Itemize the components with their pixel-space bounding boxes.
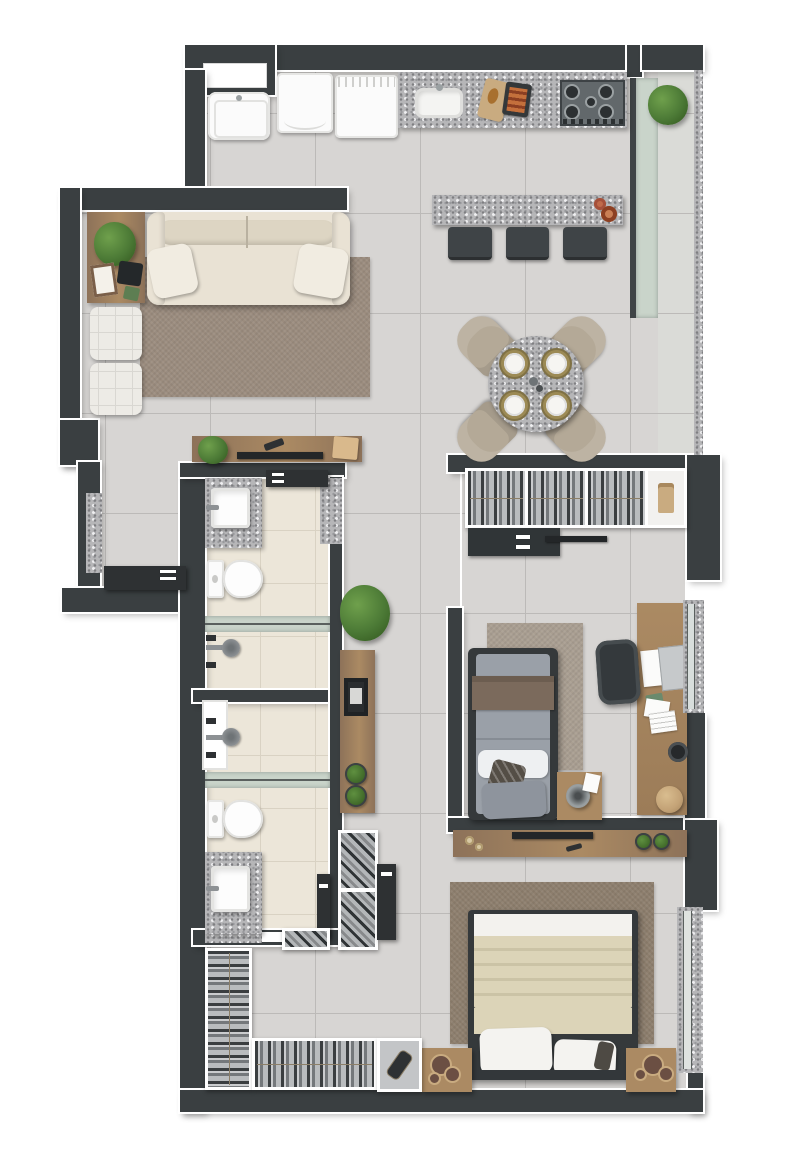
- place-setting-1: [499, 348, 530, 379]
- bath2-flush: [212, 815, 218, 823]
- hallway-potted-plant-1: [345, 763, 367, 785]
- bath1-shower-head: [222, 639, 240, 657]
- burner-center: [585, 96, 597, 108]
- nightstand-left-bowl-2: [444, 1066, 461, 1083]
- bath1-shower-control-2: [206, 662, 216, 668]
- shoe-rack-top: [341, 833, 375, 888]
- bar-stool-1: [448, 227, 492, 260]
- plate: [546, 395, 567, 416]
- entry-window-sill: [86, 493, 102, 573]
- bath2-shower-control-2: [206, 752, 216, 758]
- entry-door-handle-1: [160, 570, 176, 573]
- hallway-art-inner: [350, 688, 362, 704]
- closet-accessory-cubby: [377, 1038, 422, 1092]
- bath2-screen-line: [205, 779, 330, 781]
- green-card: [123, 286, 140, 302]
- master-tv: [512, 832, 593, 839]
- wardrobe-rail: [590, 498, 643, 499]
- left-wall-jog: [60, 420, 98, 465]
- bath1-door-handle-1: [272, 473, 284, 476]
- entry-bottom-wall: [62, 588, 190, 612]
- balcony-railing: [694, 70, 703, 455]
- ottoman-1: [90, 307, 142, 360]
- floor-plan: [0, 0, 793, 1169]
- bath1-faucet: [206, 505, 219, 510]
- place-setting-2: [541, 348, 572, 379]
- desk-chair: [595, 639, 641, 706]
- place-setting-4: [541, 390, 572, 421]
- bedroom1-tv: [545, 536, 607, 542]
- bedroom1-pouf: [656, 786, 683, 813]
- bath-block-left-wall: [180, 463, 205, 1112]
- bar-stool-2: [506, 227, 549, 260]
- sofa-seam: [246, 216, 248, 248]
- washer-door-arc: [284, 112, 326, 130]
- shoe-rack-bottom: [341, 892, 375, 947]
- bedroom1-gray-pillow: [481, 780, 547, 819]
- bath2-shower-head: [222, 728, 240, 746]
- ottoman-2: [90, 363, 142, 415]
- burner-3: [564, 104, 580, 120]
- closet-rack-horizontal: [252, 1038, 377, 1090]
- wardrobe-section-3: [588, 471, 645, 525]
- right-wall-upper-chunk: [687, 455, 720, 580]
- kitchen-faucet: [436, 84, 443, 91]
- plate: [504, 353, 525, 374]
- bedroom1-duvet-fold: [476, 738, 550, 740]
- master-headboard: [468, 1070, 638, 1080]
- folded-shirt: [658, 483, 674, 513]
- nightstand-left-bowl-3: [428, 1072, 441, 1085]
- kitchen-left-wall: [185, 70, 205, 190]
- dish-rack: [338, 77, 395, 87]
- shoe-cubby: [282, 928, 330, 950]
- table-centerpiece-2: [536, 385, 543, 392]
- cooktop-controls: [563, 119, 623, 124]
- kitchen-sink: [415, 88, 463, 118]
- living-tv: [237, 452, 323, 459]
- plate: [546, 353, 567, 374]
- wardrobe-shirt-shelf: [648, 471, 684, 525]
- living-top-wall: [60, 188, 347, 210]
- bedroom1-left-wall: [448, 608, 462, 830]
- bar-stool-3: [563, 227, 607, 260]
- burner-4: [598, 104, 614, 120]
- closet-rack-vertical-clothes: [208, 951, 249, 1087]
- bath1-granite-niche: [320, 478, 342, 544]
- closet-rail: [229, 953, 230, 1085]
- bedroom1-wardrobe: [465, 468, 687, 528]
- sideboard-candle-2: [475, 843, 483, 851]
- wardrobe-rail: [530, 498, 583, 499]
- wardrobe-section-1: [468, 471, 525, 525]
- side-table-plant: [94, 222, 136, 266]
- sideboard-candle-1: [465, 836, 474, 845]
- drawer-handle-2: [516, 545, 530, 549]
- top-wall-notch: [627, 45, 642, 77]
- bedroom1-drawers: [468, 528, 560, 556]
- master-bed-duvet-folds: [474, 936, 632, 1008]
- top-window: [203, 63, 267, 88]
- wardrobe-rail: [470, 498, 523, 499]
- burner-2: [598, 84, 614, 100]
- top-right-wall: [642, 45, 703, 70]
- console-plant: [198, 436, 228, 464]
- balcony-planter-shrub: [648, 85, 688, 125]
- flower-pot-large: [601, 206, 617, 222]
- storage-box: [332, 436, 359, 460]
- bath1-door-handle-2: [272, 480, 284, 483]
- bath2-shower-control-1: [206, 718, 216, 724]
- bath1-flush: [212, 575, 218, 583]
- burner-1: [564, 84, 580, 100]
- nightstand-right-bowl-3: [634, 1068, 647, 1081]
- master-pillow-left: [479, 1027, 553, 1075]
- bath2-toilet-bowl: [223, 800, 263, 838]
- wardrobe-section-2: [528, 471, 585, 525]
- bath1-shower-control-1: [206, 635, 216, 641]
- plate: [504, 395, 525, 416]
- bottom-wall: [180, 1090, 703, 1112]
- hallway-potted-plant-2: [345, 785, 367, 807]
- master-door-handle: [381, 872, 392, 876]
- laundry-sink-basin: [214, 100, 268, 138]
- master-window-glass: [683, 911, 692, 1069]
- nightstand-right-bowl-2: [658, 1066, 674, 1082]
- bath2-faucet: [206, 886, 219, 891]
- bedroom1-window-glass: [687, 604, 695, 709]
- bath2-door-handle: [319, 884, 328, 888]
- closet-rack-horizontal-clothes: [255, 1041, 374, 1087]
- bath2-shower-screen: [205, 772, 330, 788]
- bath1-shower-screen: [205, 616, 330, 632]
- picture-frame: [90, 262, 118, 297]
- closet-rail: [257, 1064, 372, 1065]
- laundry-faucet: [236, 95, 242, 101]
- entry-door-handle-2: [160, 577, 176, 580]
- sideboard-plant-1: [635, 833, 652, 850]
- desk-dark-disc: [668, 742, 688, 762]
- bath1-toilet-bowl: [223, 560, 263, 598]
- master-bed-sheet: [474, 914, 632, 938]
- place-setting-3: [499, 390, 530, 421]
- balcony-floor: [658, 70, 694, 455]
- drawer-handle-1: [516, 535, 530, 539]
- hallway-floor-plant: [340, 585, 390, 641]
- bath1-screen-line: [205, 623, 330, 625]
- grill-food: [506, 87, 527, 113]
- desk-papers-2: [649, 710, 678, 733]
- right-wall-mid: [685, 713, 705, 820]
- shoe-rack: [338, 830, 378, 950]
- bedroom1-throw: [472, 676, 554, 710]
- sofa-pillow-right: [292, 242, 350, 300]
- sideboard-plant-2: [653, 833, 670, 850]
- shoe-cubby-inner: [285, 931, 327, 947]
- right-wall-thick: [685, 820, 717, 910]
- tablet: [117, 260, 144, 286]
- closet-rack-vertical: [205, 948, 252, 1090]
